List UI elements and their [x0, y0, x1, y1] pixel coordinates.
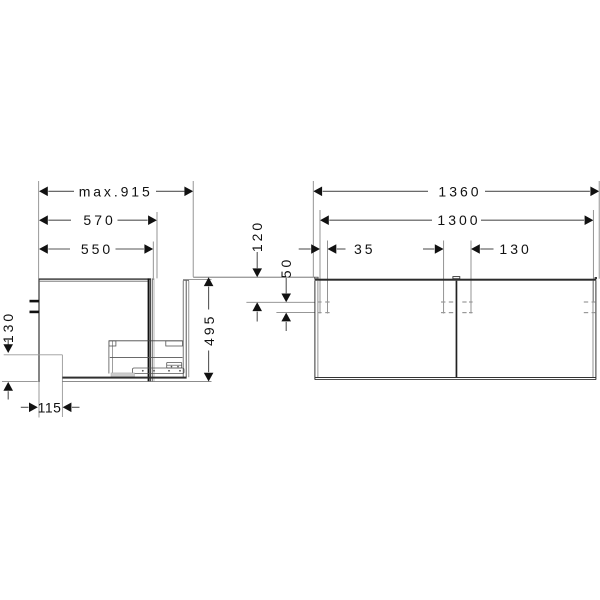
svg-text:1300: 1300: [437, 212, 480, 228]
svg-text:550: 550: [81, 241, 113, 257]
svg-text:495: 495: [201, 314, 217, 346]
svg-text:115: 115: [38, 399, 62, 415]
svg-text:570: 570: [83, 212, 115, 228]
svg-text:130: 130: [0, 311, 16, 343]
svg-text:130: 130: [499, 241, 531, 257]
svg-text:120: 120: [249, 220, 265, 252]
svg-text:max.915: max.915: [79, 183, 153, 199]
svg-text:35: 35: [354, 241, 376, 257]
svg-text:50: 50: [278, 257, 294, 279]
svg-text:1360: 1360: [438, 183, 481, 199]
